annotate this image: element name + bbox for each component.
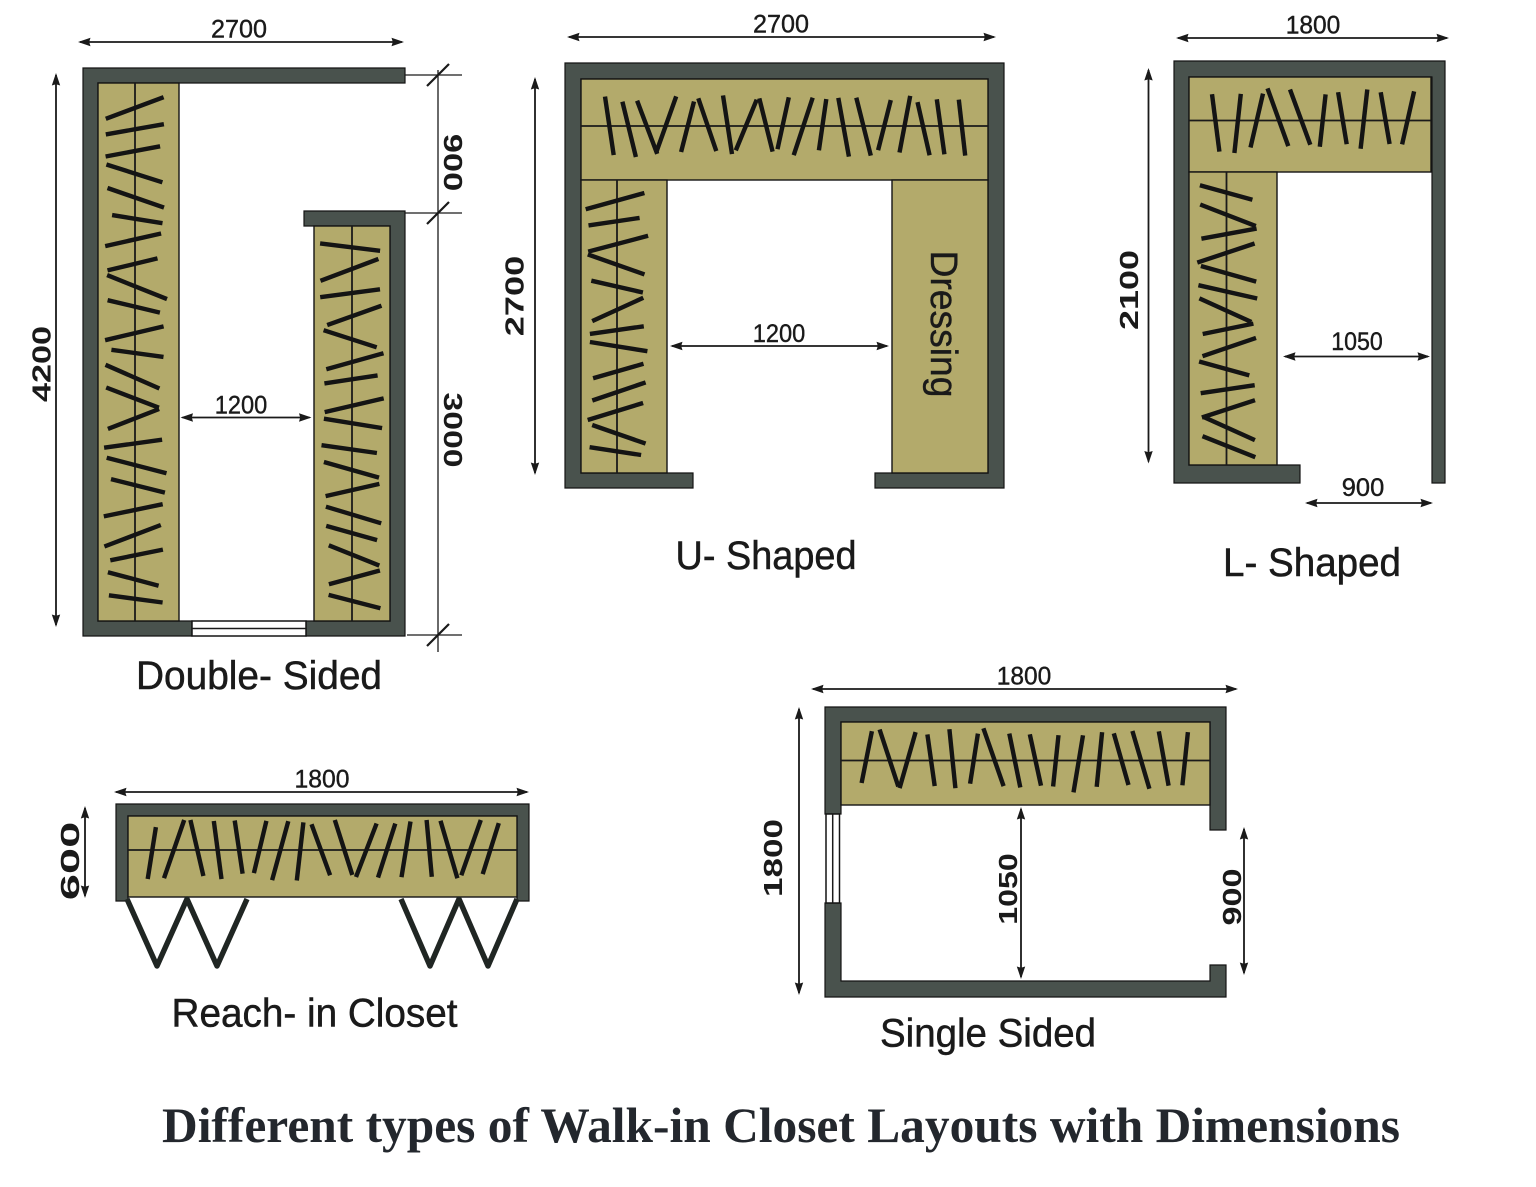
svg-text:900: 900: [1342, 474, 1385, 502]
svg-text:900: 900: [438, 134, 468, 192]
svg-text:600: 600: [55, 822, 85, 901]
svg-text:1200: 1200: [753, 320, 806, 348]
svg-text:1800: 1800: [1286, 12, 1341, 40]
svg-text:Dressing: Dressing: [922, 251, 964, 398]
svg-text:2700: 2700: [211, 16, 267, 44]
svg-text:U- Shaped: U- Shaped: [676, 534, 857, 578]
svg-text:3000: 3000: [438, 393, 468, 468]
svg-text:1800: 1800: [758, 819, 788, 897]
svg-text:1800: 1800: [997, 663, 1052, 691]
svg-text:2100: 2100: [1114, 250, 1144, 330]
svg-text:Double- Sided: Double- Sided: [136, 654, 382, 698]
svg-text:900: 900: [1217, 869, 1247, 926]
svg-text:Single Sided: Single Sided: [880, 1012, 1096, 1056]
svg-text:1050: 1050: [993, 853, 1023, 925]
svg-text:1200: 1200: [215, 392, 268, 420]
svg-text:Different types of Walk-in Clo: Different types of Walk-in Closet Layout…: [162, 1097, 1400, 1153]
svg-text:4200: 4200: [27, 326, 57, 402]
svg-text:2700: 2700: [500, 256, 530, 337]
svg-text:L- Shaped: L- Shaped: [1223, 541, 1401, 585]
svg-text:Reach- in Closet: Reach- in Closet: [172, 992, 458, 1036]
svg-text:2700: 2700: [753, 11, 809, 39]
svg-text:1050: 1050: [1331, 328, 1383, 356]
svg-text:1800: 1800: [295, 766, 350, 794]
